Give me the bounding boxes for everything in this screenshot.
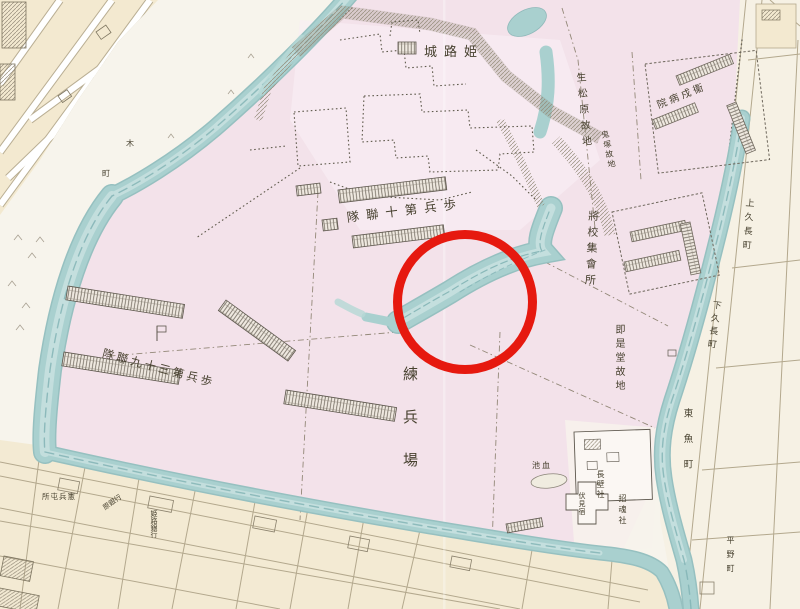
himeji-bank-label: 姫路銀行	[150, 510, 157, 538]
hirano-machi-label: 平野町	[726, 536, 734, 578]
sokuzedo-label: 即是堂故地	[613, 324, 623, 394]
shokonsha-label: 招魂社	[618, 494, 626, 527]
char-ki-label: 木	[126, 140, 134, 148]
osakabe-shrine-label: 長壁社	[596, 470, 604, 500]
higashi-uomachi-label: 東魚町	[682, 408, 692, 485]
kempei-post-label: 所屯兵憲	[42, 493, 76, 501]
castle-label: 城路姫	[424, 46, 484, 59]
pond-label: 池血	[532, 462, 552, 470]
fushimi-label: 伏見宿	[578, 492, 585, 516]
annotation-circle	[393, 230, 537, 374]
char-machi-label: 町	[102, 170, 110, 178]
map-canvas: 城路姫 隊聯十第兵歩 隊聯九十三第兵歩 將校集會所 院病戍衞 生松原故地 鬼塚故…	[0, 0, 800, 609]
parade-ground-label: 練兵場	[402, 366, 417, 495]
